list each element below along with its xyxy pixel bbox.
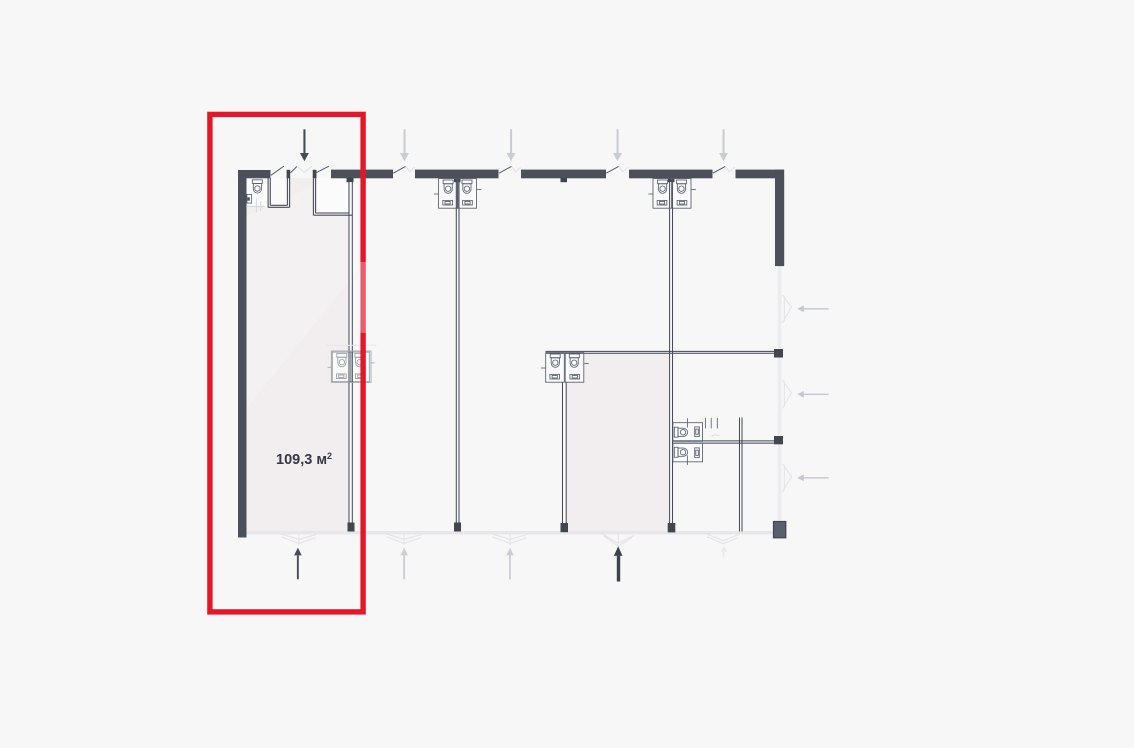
svg-text:109,3 м2: 109,3 м2: [276, 451, 332, 468]
